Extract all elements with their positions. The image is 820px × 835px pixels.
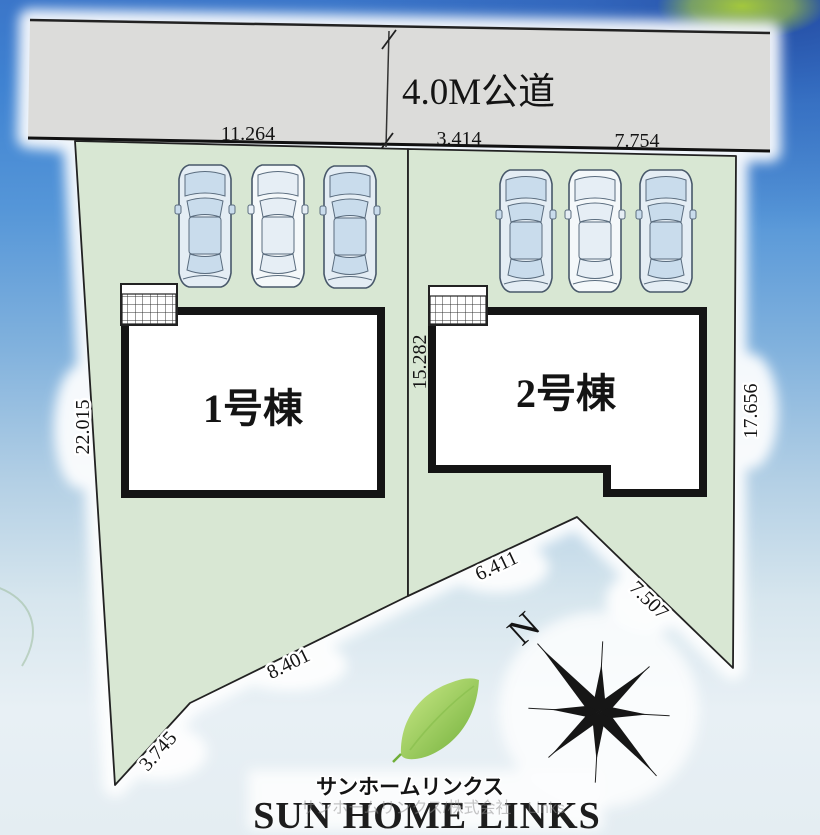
entrance-porch-1 [121,284,177,325]
dim-road-front-lot1: 11.264 [221,123,275,145]
car-icon [320,166,380,288]
dim-center-boundary: 15.282 [409,335,431,390]
car-icon [636,170,696,292]
dim-lot2-right-side: 17.656 [740,384,762,439]
car-icon [248,165,308,287]
building1-label: 1号棟 [203,386,304,431]
entrance-porch-2 [429,286,487,325]
site-plan-svg: 4.0M公道 11.264 3.414 7.754 22.015 15.282 … [0,0,820,835]
site-plan-image: 4.0M公道 11.264 3.414 7.754 22.015 15.282 … [0,0,820,835]
road-label: 4.0M公道 [402,71,555,113]
dim-lot1-left-side: 22.015 [72,400,94,455]
car-icon [565,170,625,292]
dim-road-front-lot2-right: 7.754 [615,130,660,152]
car-icon [496,170,556,292]
building2-label: 2号棟 [516,371,617,416]
car-icon [175,165,235,287]
dim-road-front-lot2-left: 3.414 [437,128,482,150]
logo-watermark: サンホームリンクス/株式会社 Links [300,799,565,817]
